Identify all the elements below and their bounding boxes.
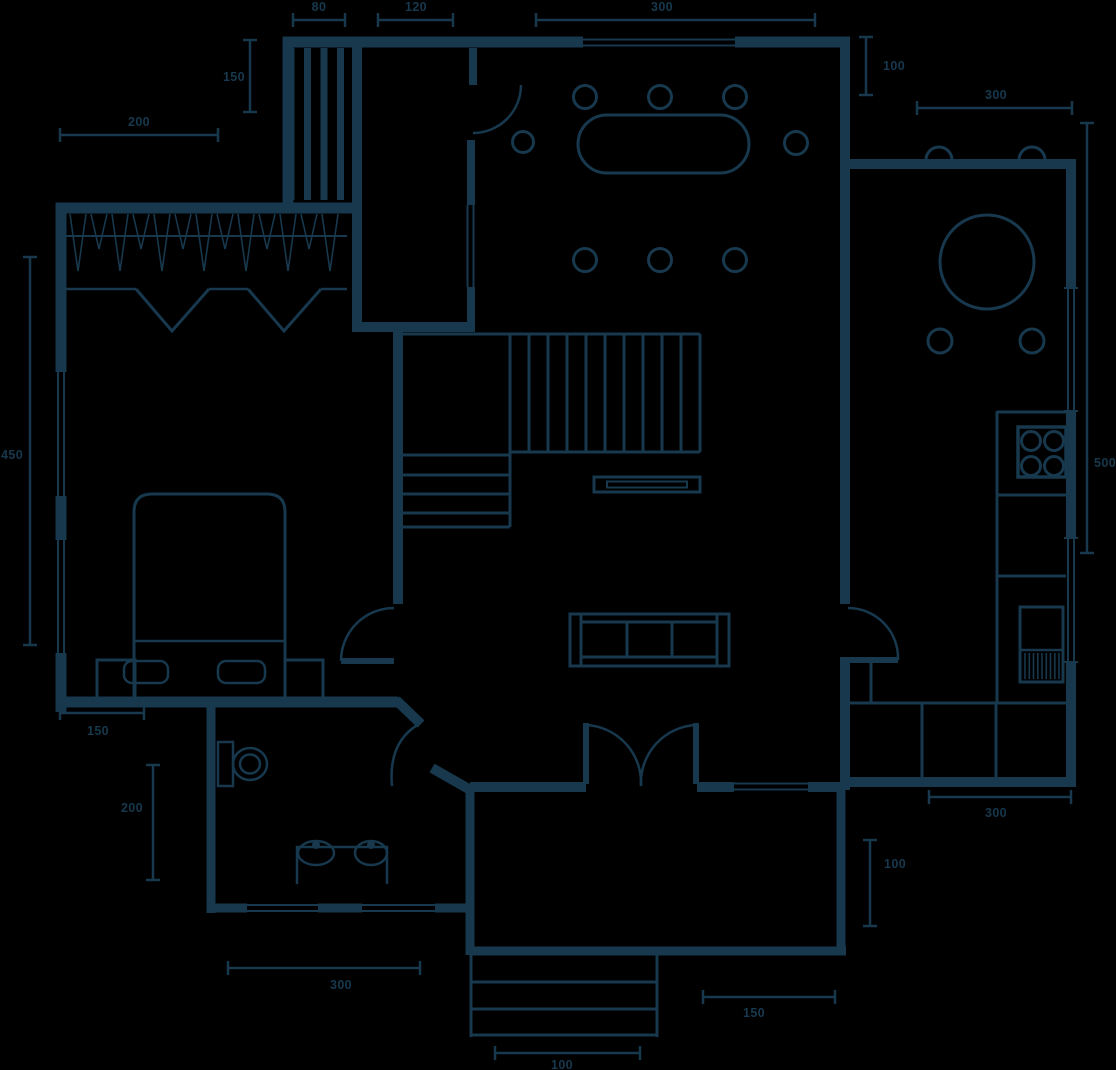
faucet (367, 841, 375, 849)
floor-plan-canvas: 80 120 300 150 200 100 300 450 500 150 2… (0, 0, 1116, 1070)
dimension-200-bathroom: 200 (121, 765, 160, 880)
dining-chairs (513, 86, 808, 272)
wardrobe-hangers (70, 214, 338, 271)
dim-label: 100 (884, 857, 906, 871)
bedroom-door (341, 608, 394, 661)
bathroom-door (392, 724, 419, 786)
staircase (403, 334, 700, 527)
kitchen-door (848, 608, 898, 660)
dining-set (513, 86, 808, 272)
dimension-300-top-right: 300 (917, 88, 1072, 115)
bar-stools (926, 147, 1045, 160)
kitchen-sink-unit (1020, 607, 1063, 682)
cooktop-four-burners (1018, 427, 1066, 477)
dim-label: 100 (883, 59, 905, 73)
dimension-300-bathroom: 300 (228, 961, 420, 992)
pillow (218, 661, 265, 683)
interior-walls (352, 37, 845, 792)
dimension-150-bedroom: 150 (60, 706, 144, 738)
wardrobe (66, 214, 347, 331)
dim-label: 450 (1, 448, 23, 462)
dimension-450-left: 450 (1, 257, 37, 645)
tv-unit (594, 477, 700, 492)
toilet (218, 742, 267, 786)
dining-table (578, 115, 749, 173)
kitchen-chairs (928, 329, 1044, 353)
porch-steps (471, 955, 657, 1037)
dim-label: 80 (312, 0, 327, 14)
dimension-150-porch: 150 (703, 990, 835, 1020)
pillow (124, 661, 168, 683)
dimension-80: 80 (293, 0, 345, 27)
dimension-300-top: 300 (536, 0, 815, 27)
sofa (570, 614, 729, 666)
dim-label: 200 (128, 115, 150, 129)
dimension-200-top-left: 200 (60, 115, 218, 142)
dim-label: 300 (985, 806, 1007, 820)
round-kitchen-table (940, 215, 1034, 309)
dim-label: 200 (121, 801, 143, 815)
dim-label: 150 (223, 70, 245, 84)
front-door (473, 48, 521, 133)
dimension-100-porch: 100 (495, 1046, 640, 1070)
dim-label: 150 (87, 724, 109, 738)
nightstands (97, 660, 323, 700)
dim-label: 500 (1094, 456, 1116, 470)
closet-bifold-doors (136, 289, 321, 331)
dimension-150-top-left: 150 (223, 40, 257, 112)
dim-label: 300 (330, 978, 352, 992)
double-sink-vanity (297, 841, 387, 884)
dim-label: 300 (985, 88, 1007, 102)
kitchen-counter (848, 411, 1071, 782)
dim-label: 300 (651, 0, 673, 14)
kitchen (848, 147, 1071, 782)
double-entry-doors (586, 723, 696, 786)
dimension-100-right-lower: 100 (863, 840, 906, 926)
faucet (312, 841, 320, 849)
shelf-unit (291, 48, 341, 200)
double-bed (124, 494, 285, 702)
dim-label: 150 (743, 1006, 765, 1020)
dim-label: 100 (551, 1058, 573, 1070)
dim-label: 120 (405, 0, 427, 14)
dimension-100-top-right: 100 (859, 37, 905, 95)
dimension-120: 120 (378, 0, 453, 27)
floor-plan-drawing: 80 120 300 150 200 100 300 450 500 150 2… (0, 0, 1116, 1070)
dimension-500-right: 500 (1080, 123, 1116, 553)
exterior-walls (56, 37, 1073, 955)
dimension-300-kitchen: 300 (929, 790, 1071, 820)
